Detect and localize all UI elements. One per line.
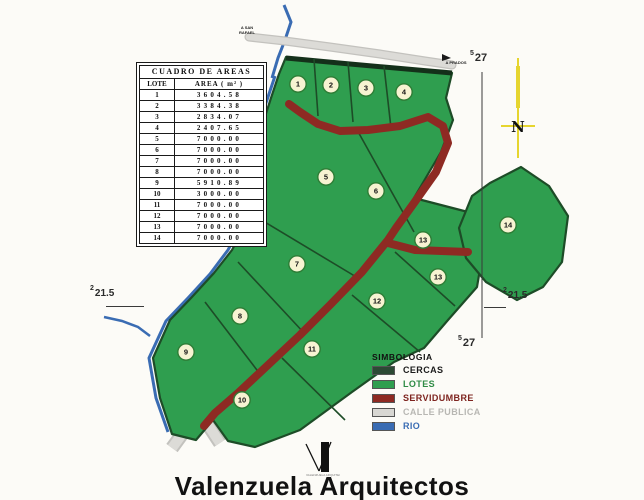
legend-item: LOTES	[372, 381, 481, 388]
grid-tick-left	[106, 306, 144, 307]
lote-cell: 2	[140, 101, 175, 112]
lote-cell: 1	[140, 90, 175, 101]
legend: SIMBOLOGIA CERCASLOTESSERVIDUMBRECALLE P…	[372, 352, 481, 437]
lote-cell: 6	[140, 145, 175, 156]
grid-marker-num: 27	[475, 52, 487, 64]
lote-cell: 12	[140, 211, 175, 222]
area-cell: 3000.00	[175, 189, 264, 200]
area-cell: 3384.38	[175, 101, 264, 112]
legend-swatch	[372, 422, 395, 431]
table-row: 77000.00	[140, 156, 264, 167]
legend-label: RIO	[403, 422, 420, 431]
grid-marker-num: 21.5	[508, 290, 527, 301]
grid-marker-sup: 5	[470, 50, 474, 57]
area-cell: 3604.58	[175, 90, 264, 101]
lot-number: 11	[308, 345, 316, 354]
grid-marker-num: 27	[463, 337, 475, 349]
area-cell: 7000.00	[175, 167, 264, 178]
area-cell: 7000.00	[175, 233, 264, 244]
lote-cell: 14	[140, 233, 175, 244]
area-cell: 7000.00	[175, 156, 264, 167]
lot-number: 2	[329, 81, 333, 90]
table-row: 67000.00	[140, 145, 264, 156]
lot-number: 13	[434, 273, 442, 282]
table-row: 147000.00	[140, 233, 264, 244]
legend-label: CALLE PUBLICA	[403, 408, 481, 417]
lote-cell: 4	[140, 123, 175, 134]
legend-label: SERVIDUMBRE	[403, 394, 474, 403]
table-row: 137000.00	[140, 222, 264, 233]
lot-number: 3	[364, 84, 368, 93]
grid-marker-top-right: 527	[470, 50, 487, 64]
grid-marker-right: 221.5	[503, 287, 527, 301]
legend-swatch	[372, 394, 395, 403]
area-table-title: CUADRO DE AREAS	[140, 66, 264, 79]
area-cell: 7000.00	[175, 134, 264, 145]
col-header-area: AREA ( m² )	[175, 79, 264, 90]
legend-swatch	[372, 408, 395, 417]
grid-marker-sup: 2	[90, 285, 94, 292]
lot-number: 6	[374, 187, 378, 196]
table-row: 95910.89	[140, 178, 264, 189]
lot-number: 10	[238, 396, 246, 405]
grid-marker-left: 221.5	[90, 285, 114, 299]
legend-item: RIO	[372, 423, 481, 430]
lot-number: 14	[504, 221, 513, 230]
legend-item: CERCAS	[372, 367, 481, 374]
lote-cell: 5	[140, 134, 175, 145]
site-plan-map: 123456789101112131314	[0, 0, 644, 500]
table-row: 117000.00	[140, 200, 264, 211]
area-cell: 5910.89	[175, 178, 264, 189]
col-header-lote: LOTE	[140, 79, 175, 90]
legend-label: CERCAS	[403, 366, 443, 375]
area-cell: 2407.65	[175, 123, 264, 134]
table-row: 23384.38	[140, 101, 264, 112]
plat-map-page: 123456789101112131314 N CUADRO DE AREAS …	[0, 0, 644, 500]
grid-marker-sup: 5	[458, 335, 462, 342]
north-arrow-icon: N	[497, 56, 541, 164]
lot-number: 12	[373, 297, 381, 306]
road-label-left: A SAN RAFAEL	[236, 26, 258, 35]
lote-cell: 7	[140, 156, 175, 167]
legend-title: SIMBOLOGIA	[372, 352, 481, 362]
area-cell: 7000.00	[175, 222, 264, 233]
lote-cell: 11	[140, 200, 175, 211]
legend-item: SERVIDUMBRE	[372, 395, 481, 402]
legend-swatch	[372, 366, 395, 375]
lot-number: 9	[184, 348, 188, 357]
table-row: 42407.65	[140, 123, 264, 134]
lot-number: 13	[419, 236, 427, 245]
area-cell: 7000.00	[175, 200, 264, 211]
area-cell: 7000.00	[175, 211, 264, 222]
table-row: 32834.07	[140, 112, 264, 123]
lot-number: 8	[238, 312, 242, 321]
north-letter: N	[511, 118, 525, 136]
table-row: 103000.00	[140, 189, 264, 200]
table-row: 57000.00	[140, 134, 264, 145]
firm-title: Valenzuela Arquitectos	[0, 471, 644, 500]
lote-cell: 8	[140, 167, 175, 178]
lote-cell: 3	[140, 112, 175, 123]
legend-label: LOTES	[403, 380, 435, 389]
grid-marker-num: 21.5	[95, 288, 114, 299]
table-row: 13604.58	[140, 90, 264, 101]
grid-marker-sup: 2	[503, 287, 507, 294]
legend-item: CALLE PUBLICA	[372, 409, 481, 416]
grid-marker-bottom-right: 527	[458, 335, 475, 349]
area-cell: 7000.00	[175, 145, 264, 156]
area-cell: 2834.07	[175, 112, 264, 123]
lot-number: 5	[324, 173, 328, 182]
lote-cell: 10	[140, 189, 175, 200]
legend-swatch	[372, 380, 395, 389]
lote-cell: 9	[140, 178, 175, 189]
area-table: CUADRO DE AREAS LOTE AREA ( m² ) 13604.5…	[136, 62, 267, 247]
table-row: 127000.00	[140, 211, 264, 222]
lot-number: 1	[296, 80, 300, 89]
lote-cell: 13	[140, 222, 175, 233]
table-row: 87000.00	[140, 167, 264, 178]
road-label-right: A PRADOS	[444, 61, 468, 66]
grid-tick-right	[484, 307, 506, 308]
lot-number: 7	[295, 260, 299, 269]
